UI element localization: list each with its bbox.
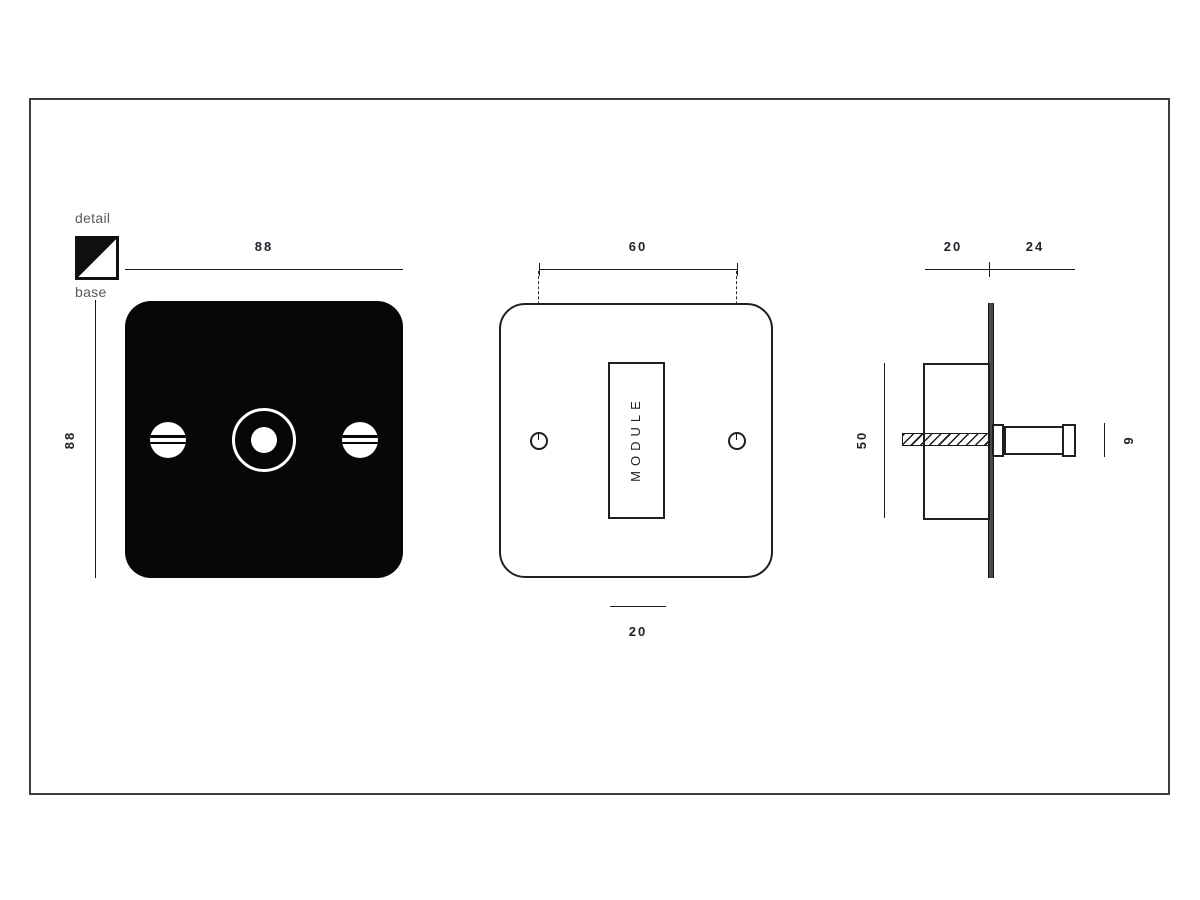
right-screw-icon [342,422,378,458]
hole-center-tick [538,434,539,440]
screw-slot-line [150,435,186,438]
screw-slot-line [150,442,186,445]
front-height-dim-line [95,300,96,578]
knob-projection-dim-label: 24 [985,239,1085,255]
mounting-hole-right [728,432,746,450]
side-top-dim-line [925,269,1075,270]
knob-diameter-dim-line [1104,423,1105,457]
hole-center-tick [736,434,737,440]
box-height-dim-line [884,363,885,518]
module-label: MODULE [627,359,645,519]
front-height-dim-label: 88 [62,390,78,490]
mounting-hole-left [530,432,548,450]
legend-detail-label: detail [75,210,110,226]
front-width-dim-label: 88 [214,239,314,255]
knob-cap-profile [1062,424,1076,457]
box-height-dim-label: 50 [854,390,870,490]
knob-flange-profile [992,424,1004,457]
front-width-dim-line [125,269,403,270]
knob-diameter-dim-label: 9 [1121,390,1137,490]
threaded-rod [902,433,990,446]
dim-mid-tick [989,262,990,277]
drawing-canvas: detail base 88 88 60 [0,0,1200,900]
left-screw-icon [150,422,186,458]
knob-body-profile [1004,426,1064,455]
module-width-dim-label: 20 [588,624,688,640]
dimmer-knob-center [251,427,277,453]
hole-spacing-dim-label: 60 [588,239,688,255]
screw-slot-line [342,435,378,438]
detail-base-swatch-icon [75,236,119,280]
screw-slot-line [342,442,378,445]
legend-base-label: base [75,284,107,300]
module-width-dim-line [610,606,666,607]
hole-spacing-dim-line [539,269,737,270]
